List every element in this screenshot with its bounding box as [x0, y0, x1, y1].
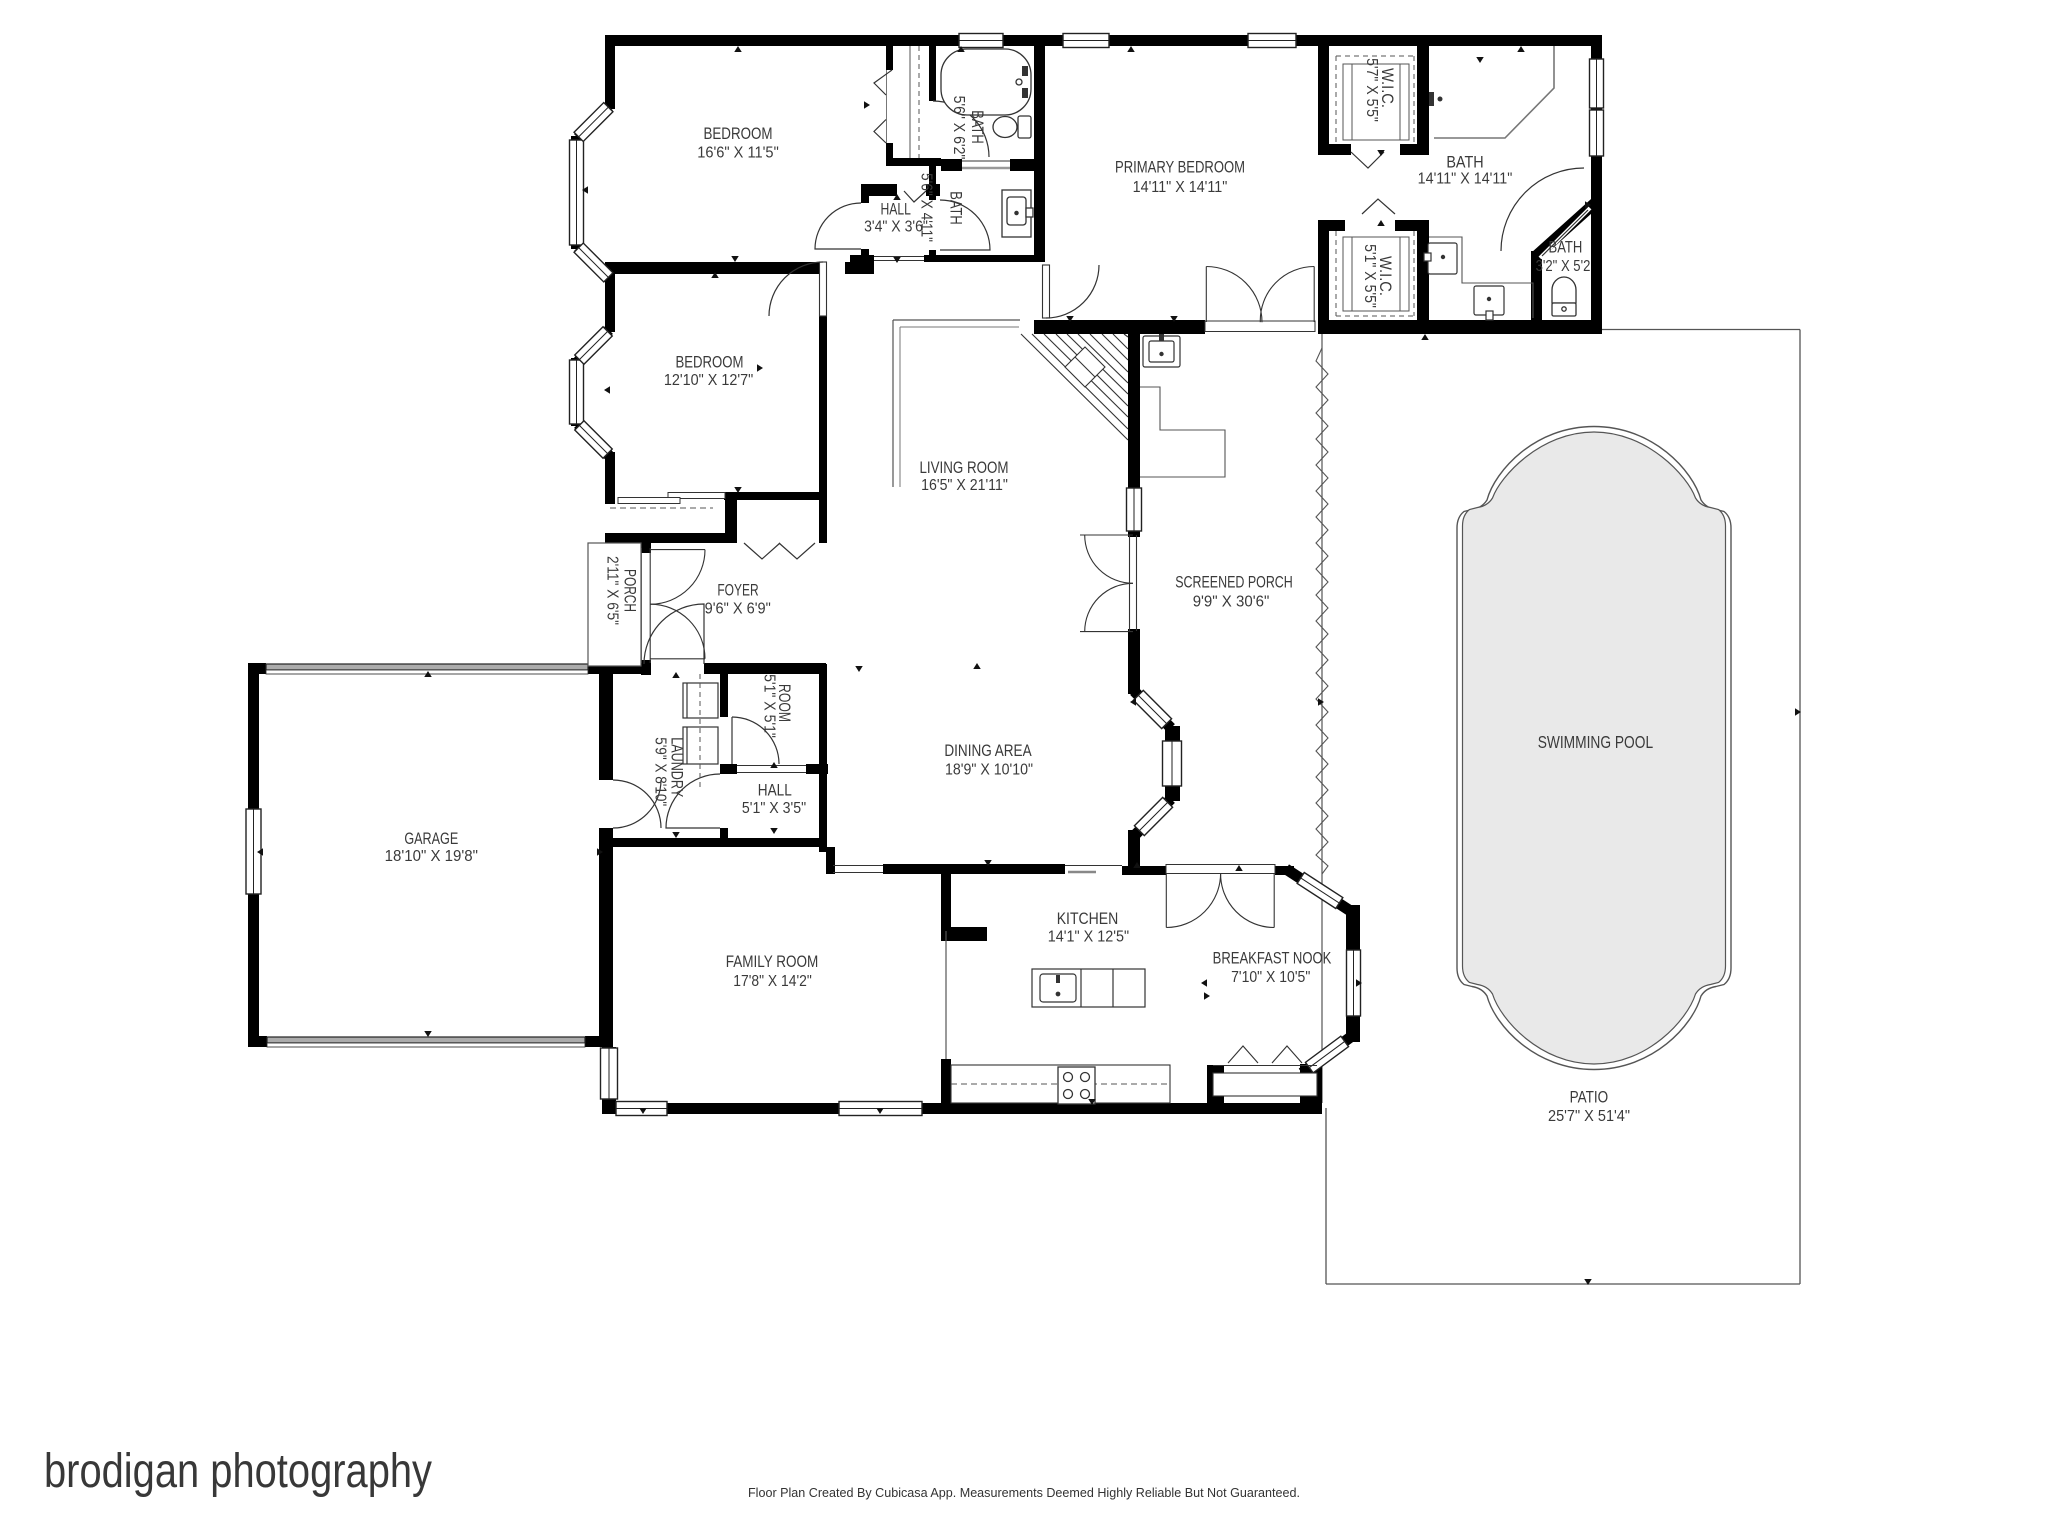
svg-text:BATH: BATH [968, 110, 986, 144]
svg-text:BREAKFAST NOOK: BREAKFAST NOOK [1213, 950, 1332, 968]
svg-text:GARAGE: GARAGE [404, 830, 458, 848]
svg-text:7'10" X 10'5": 7'10" X 10'5" [1231, 969, 1310, 986]
svg-text:BATH: BATH [1549, 238, 1583, 256]
svg-text:5'7" X 5'5": 5'7" X 5'5" [1363, 58, 1380, 122]
svg-text:SWIMMING POOL: SWIMMING POOL [1538, 732, 1654, 752]
svg-text:BATH: BATH [1446, 153, 1483, 171]
svg-text:14'11" X 14'11": 14'11" X 14'11" [1418, 171, 1513, 188]
svg-text:9'6" X 6'9": 9'6" X 6'9" [705, 601, 771, 618]
svg-text:16'5" X 21'11": 16'5" X 21'11" [921, 477, 1008, 494]
svg-text:PORCH: PORCH [620, 569, 638, 612]
svg-text:5'1" X 3'5": 5'1" X 3'5" [742, 800, 806, 817]
svg-text:12'10" X 12'7": 12'10" X 12'7" [664, 372, 753, 389]
svg-text:2'11" X 6'5": 2'11" X 6'5" [603, 556, 620, 625]
svg-text:5'6" X 4'11": 5'6" X 4'11" [918, 173, 935, 242]
svg-text:18'9" X 10'10": 18'9" X 10'10" [945, 762, 1033, 779]
svg-text:BATH: BATH [947, 191, 965, 225]
svg-text:LIVING ROOM: LIVING ROOM [920, 459, 1009, 477]
svg-text:HALL: HALL [881, 201, 911, 219]
svg-text:Floor Plan Created By Cubicasa: Floor Plan Created By Cubicasa App. Meas… [748, 1485, 1300, 1500]
svg-text:17'8" X 14'2": 17'8" X 14'2" [733, 973, 812, 990]
svg-text:BEDROOM: BEDROOM [676, 354, 744, 372]
svg-text:DINING AREA: DINING AREA [944, 742, 1031, 760]
svg-text:HALL: HALL [758, 782, 792, 800]
svg-text:PRIMARY BEDROOM: PRIMARY BEDROOM [1115, 159, 1245, 177]
svg-text:brodigan photography: brodigan photography [44, 1445, 432, 1498]
svg-text:LAUNDRY: LAUNDRY [668, 737, 686, 797]
svg-text:14'1" X 12'5": 14'1" X 12'5" [1048, 929, 1129, 946]
svg-text:5'1" X 5'5": 5'1" X 5'5" [1361, 244, 1378, 308]
svg-text:16'6" X 11'5": 16'6" X 11'5" [697, 145, 779, 162]
svg-text:SCREENED PORCH: SCREENED PORCH [1175, 574, 1293, 592]
svg-text:ROOM: ROOM [775, 684, 793, 722]
svg-text:14'11" X 14'11": 14'11" X 14'11" [1133, 179, 1228, 196]
svg-text:18'10" X 19'8": 18'10" X 19'8" [385, 848, 478, 865]
svg-text:25'7" X 51'4": 25'7" X 51'4" [1548, 1108, 1630, 1125]
svg-text:W.I.C.: W.I.C. [1378, 68, 1396, 108]
svg-text:KITCHEN: KITCHEN [1057, 910, 1119, 928]
svg-text:PATIO: PATIO [1570, 1089, 1609, 1107]
svg-text:5'6" X 6'2": 5'6" X 6'2" [950, 96, 967, 160]
svg-text:BEDROOM: BEDROOM [704, 125, 773, 143]
svg-text:5'9" X 8'10": 5'9" X 8'10" [652, 737, 669, 806]
svg-text:W.I.C.: W.I.C. [1376, 256, 1394, 296]
svg-text:9'9" X 30'6": 9'9" X 30'6" [1193, 594, 1270, 611]
svg-text:3'2" X 5'2: 3'2" X 5'2 [1536, 258, 1591, 275]
svg-text:FOYER: FOYER [717, 582, 758, 600]
svg-text:FAMILY ROOM: FAMILY ROOM [726, 953, 819, 971]
